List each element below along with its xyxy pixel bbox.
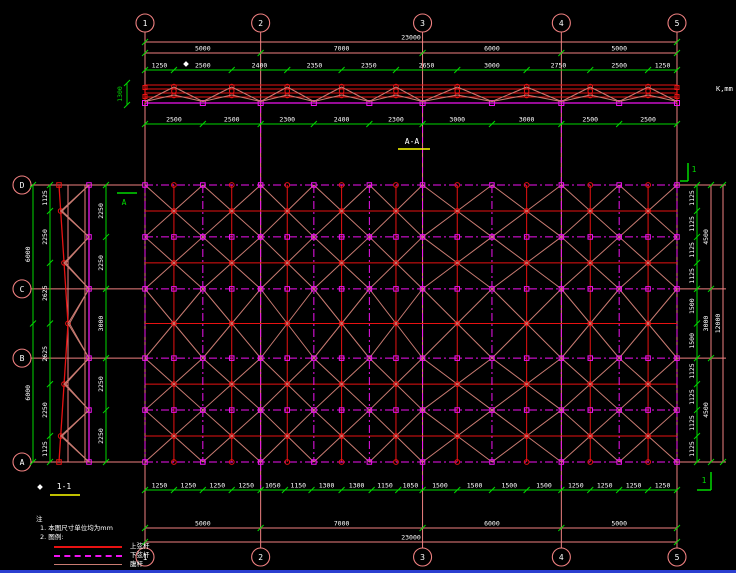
- svg-text:1500: 1500: [432, 482, 448, 490]
- svg-text:1500: 1500: [467, 482, 483, 490]
- svg-text:1125: 1125: [41, 441, 49, 457]
- unit-label: K,mm: [716, 85, 733, 93]
- svg-text:1050: 1050: [265, 482, 281, 490]
- svg-text:1300: 1300: [349, 482, 365, 490]
- svg-text:5: 5: [675, 19, 680, 28]
- svg-text:1300: 1300: [116, 86, 124, 102]
- svg-text:1500: 1500: [501, 482, 517, 490]
- svg-text:2400: 2400: [252, 62, 268, 70]
- svg-text:1300: 1300: [319, 482, 335, 490]
- svg-text:23000: 23000: [401, 34, 421, 42]
- marker-1-bottom: 1: [697, 472, 711, 490]
- svg-text:2350: 2350: [307, 62, 323, 70]
- svg-text:2500: 2500: [195, 62, 211, 70]
- svg-text:2300: 2300: [279, 116, 295, 124]
- svg-text:1125: 1125: [688, 216, 696, 232]
- svg-text:1250: 1250: [238, 482, 254, 490]
- svg-text:1125: 1125: [688, 389, 696, 405]
- svg-text:1: 1: [692, 165, 697, 174]
- svg-text:3: 3: [420, 19, 425, 28]
- svg-text:2250: 2250: [97, 255, 105, 271]
- svg-text:C: C: [20, 285, 25, 294]
- legend-item-label: 下弦杆: [130, 551, 150, 560]
- svg-text:2625: 2625: [41, 285, 49, 301]
- svg-text:2500: 2500: [611, 62, 627, 70]
- svg-text:5000: 5000: [611, 45, 627, 53]
- svg-text:1050: 1050: [403, 482, 419, 490]
- elevation-view: [143, 84, 680, 105]
- marker-1-top: 1: [680, 163, 697, 181]
- svg-text:2350: 2350: [361, 62, 377, 70]
- svg-text:2250: 2250: [97, 203, 105, 219]
- svg-text:5000: 5000: [195, 520, 211, 528]
- svg-text:2250: 2250: [97, 428, 105, 444]
- svg-text:2250: 2250: [41, 229, 49, 245]
- svg-text:1250: 1250: [626, 482, 642, 490]
- svg-text:1250: 1250: [568, 482, 584, 490]
- svg-text:1: 1: [702, 476, 707, 485]
- top-grid-bubbles: 12345: [136, 14, 686, 32]
- legend-note-1: 1. 本图尺寸单位均为mm: [40, 524, 150, 533]
- svg-text:6000: 6000: [484, 45, 500, 53]
- elevation-dimensions: 2300050007000600050001250250024002350235…: [142, 34, 680, 128]
- svg-text:7000: 7000: [334, 45, 350, 53]
- svg-text:B: B: [20, 354, 25, 363]
- svg-text:3000: 3000: [449, 116, 465, 124]
- legend-item-label: 上弦杆: [130, 542, 150, 551]
- svg-text:2500: 2500: [640, 116, 656, 124]
- svg-text:2: 2: [258, 19, 263, 28]
- legend-note-2: 2. 图例:: [40, 533, 150, 542]
- svg-text:1125: 1125: [688, 415, 696, 431]
- svg-text:6000: 6000: [484, 520, 500, 528]
- svg-text:1250: 1250: [152, 62, 168, 70]
- svg-text:3000: 3000: [702, 316, 710, 332]
- svg-text:2: 2: [258, 553, 263, 562]
- svg-text:A: A: [122, 198, 127, 207]
- section-label-11: 1-1: [37, 482, 80, 495]
- svg-text:4: 4: [559, 19, 564, 28]
- legend-item-label: 腹杆: [130, 560, 143, 569]
- section-label-aa: A-A: [183, 61, 430, 149]
- svg-text:2625: 2625: [41, 346, 49, 362]
- svg-text:1-1: 1-1: [57, 482, 72, 491]
- bottom-dimensions: 1250125012501250105011501300130011501050…: [142, 482, 680, 546]
- left-grid-bubbles: DCBA: [13, 176, 31, 471]
- svg-text:1125: 1125: [688, 441, 696, 457]
- svg-text:7000: 7000: [334, 520, 350, 528]
- svg-text:K,mm: K,mm: [716, 85, 733, 93]
- cad-drawing: 1234512345DCBA23000500070006000500012502…: [0, 0, 736, 573]
- svg-text:2500: 2500: [582, 116, 598, 124]
- svg-text:1250: 1250: [597, 482, 613, 490]
- svg-text:2500: 2500: [166, 116, 182, 124]
- top-chord-line-swatch: [54, 546, 122, 548]
- svg-text:1125: 1125: [688, 190, 696, 206]
- svg-text:1150: 1150: [377, 482, 393, 490]
- svg-text:1500: 1500: [536, 482, 552, 490]
- svg-text:4: 4: [559, 553, 564, 562]
- svg-text:A: A: [20, 458, 25, 467]
- svg-text:A-A: A-A: [405, 137, 420, 146]
- svg-text:3: 3: [420, 553, 425, 562]
- legend-item-top-chord: 上弦杆: [54, 542, 150, 551]
- cad-canvas: 1234512345DCBA23000500070006000500012502…: [0, 0, 736, 573]
- legend-item-web: 腹杆: [54, 560, 150, 569]
- svg-text:2250: 2250: [41, 402, 49, 418]
- svg-text:6000: 6000: [24, 385, 32, 401]
- svg-text:1: 1: [143, 19, 148, 28]
- svg-text:2650: 2650: [419, 62, 435, 70]
- svg-text:3000: 3000: [484, 62, 500, 70]
- bottom-grid-bubbles: 12345: [136, 548, 686, 566]
- svg-text:5000: 5000: [195, 45, 211, 53]
- svg-text:1250: 1250: [209, 482, 225, 490]
- svg-text:12000: 12000: [714, 314, 722, 334]
- svg-text:D: D: [20, 181, 25, 190]
- legend-item-bottom-chord: 下弦杆: [54, 551, 150, 560]
- svg-text:2750: 2750: [551, 62, 567, 70]
- legend-title: 注: [36, 515, 150, 524]
- svg-text:3000: 3000: [97, 316, 105, 332]
- svg-text:2500: 2500: [224, 116, 240, 124]
- svg-text:1500: 1500: [688, 333, 696, 349]
- svg-text:2400: 2400: [334, 116, 350, 124]
- height-dimension: 1300: [116, 80, 130, 108]
- svg-text:1250: 1250: [181, 482, 197, 490]
- plan-view: [143, 183, 679, 465]
- svg-text:1125: 1125: [688, 242, 696, 258]
- legend: 注 1. 本图尺寸单位均为mm 2. 图例: 上弦杆 下弦杆 腹杆: [36, 515, 150, 569]
- svg-text:1500: 1500: [688, 298, 696, 314]
- svg-text:23000: 23000: [401, 534, 421, 542]
- svg-text:1125: 1125: [688, 268, 696, 284]
- svg-text:2300: 2300: [388, 116, 404, 124]
- svg-text:1150: 1150: [290, 482, 306, 490]
- svg-text:6000: 6000: [24, 246, 32, 262]
- marker-a: A: [117, 193, 137, 207]
- svg-text:3000: 3000: [519, 116, 535, 124]
- web-member-line-swatch: [54, 564, 122, 565]
- section-view: [57, 183, 92, 464]
- svg-text:1125: 1125: [41, 190, 49, 206]
- svg-text:1250: 1250: [152, 482, 168, 490]
- svg-text:1250: 1250: [655, 482, 671, 490]
- bottom-chord-line-swatch: [54, 555, 122, 557]
- svg-text:4500: 4500: [702, 402, 710, 418]
- svg-text:5: 5: [675, 553, 680, 562]
- section-dimensions: 11252250262526252250112560006000: [24, 182, 53, 465]
- svg-text:5000: 5000: [611, 520, 627, 528]
- svg-text:4500: 4500: [702, 229, 710, 245]
- svg-text:1250: 1250: [655, 62, 671, 70]
- svg-text:1125: 1125: [688, 363, 696, 379]
- svg-text:2250: 2250: [97, 376, 105, 392]
